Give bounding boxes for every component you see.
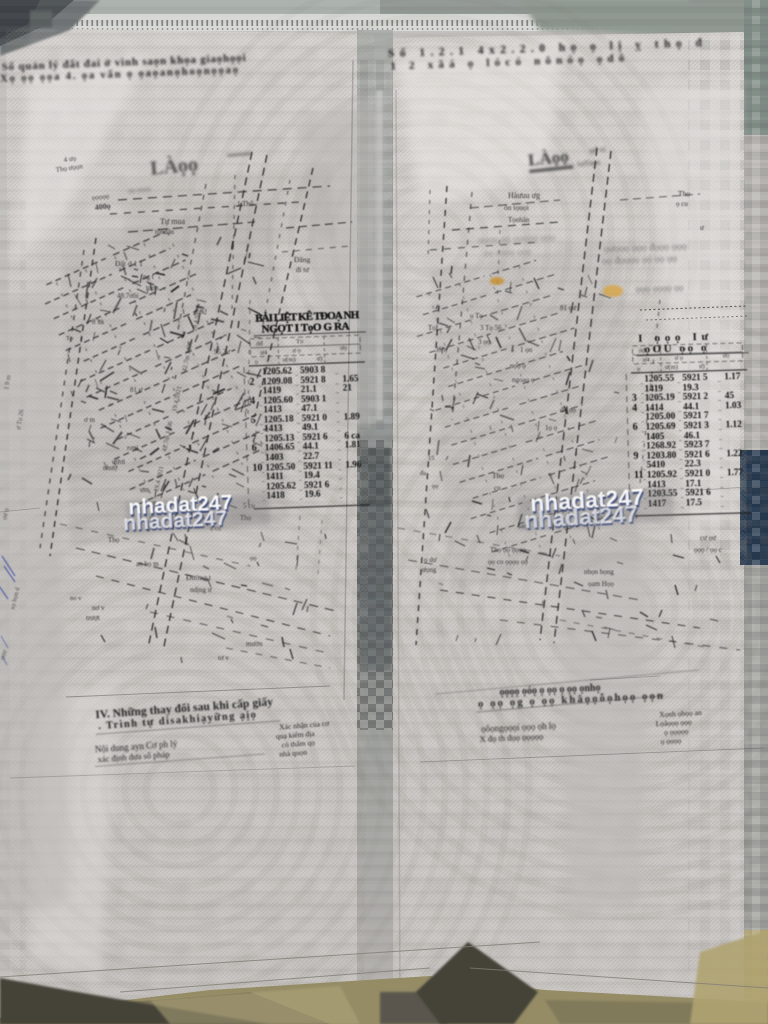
svg-text:6: 6 xyxy=(252,443,257,454)
svg-text:ôn tọuọi: ôn tọuọi xyxy=(504,203,529,212)
svg-text:1 ọn: 1 ọn xyxy=(520,346,533,354)
svg-text:LÀọọ: LÀọọ xyxy=(149,153,199,180)
svg-text:ngoaọ ọ: ngoaọ ọ xyxy=(512,376,535,384)
svg-text:mườn: mườn xyxy=(246,640,263,648)
svg-text:ưm: ưm xyxy=(140,486,150,494)
svg-text:an họ m: an họ m xyxy=(136,560,159,568)
svg-text:35 ọ: 35 ọ xyxy=(435,346,448,354)
svg-text:ọ Tọ: ọ Tọ xyxy=(470,312,483,320)
svg-text:5921 6: 5921 6 xyxy=(685,487,711,498)
svg-text:ọ: ọ xyxy=(637,366,640,373)
svg-text:đa: đa xyxy=(420,470,426,477)
svg-text:1.22: 1.22 xyxy=(726,448,743,458)
svg-text:nơ v: nơ v xyxy=(92,604,105,612)
svg-text:ọ: ọ xyxy=(255,359,258,366)
svg-text:ư4: ư4 xyxy=(260,349,268,356)
svg-text:1.17: 1.17 xyxy=(724,371,741,381)
svg-text:tuơn: tuơn xyxy=(146,284,159,292)
svg-text:Tọ: Tọ xyxy=(678,345,685,352)
svg-text:ọọ co ọọọọ ọọ: ọọ co ọọọọ ọọ xyxy=(488,558,528,566)
svg-text:1 Thổ: 1 Thổ xyxy=(237,200,254,208)
svg-text:nhọn họng: nhọn họng xyxy=(584,568,614,576)
svg-text:ớđ: ớđ xyxy=(256,340,264,347)
svg-text:22.7: 22.7 xyxy=(303,451,320,462)
svg-text:no v: no v xyxy=(70,595,82,602)
svg-text:trượt: trượt xyxy=(86,614,100,622)
svg-text:1205.55: 1205.55 xyxy=(644,373,675,384)
svg-text:400ọ: 400ọ xyxy=(94,201,111,212)
svg-text:cu: cu xyxy=(494,484,501,492)
svg-text:10: 10 xyxy=(252,463,262,474)
svg-text:3 Tọ 56: 3 Tọ 56 xyxy=(480,324,502,332)
svg-text:6: 6 xyxy=(633,422,638,433)
svg-text:17.5: 17.5 xyxy=(686,497,703,507)
svg-text:21.1: 21.1 xyxy=(301,384,318,395)
svg-text:ư4: ư4 xyxy=(643,356,651,363)
svg-text:ọọọ / ọọ c: ọọọ / ọọ c xyxy=(694,546,722,554)
svg-text:5: 5 xyxy=(251,415,256,426)
svg-text:TọI: TọI xyxy=(428,324,439,332)
svg-text:48.7ơôi: 48.7ơôi xyxy=(117,292,138,300)
svg-text:ư ọ: ư ọ xyxy=(675,355,684,362)
svg-text:ơ m: ơ m xyxy=(84,416,95,424)
svg-text:5921 5: 5921 5 xyxy=(682,372,708,383)
svg-text:ọọ: ọọ xyxy=(250,555,257,562)
svg-text:Tọnhân: Tọnhân xyxy=(508,216,530,224)
svg-text:tôndân: tôndân xyxy=(155,228,175,236)
svg-text:ư: ư xyxy=(700,224,704,232)
svg-text:5921 2: 5921 2 xyxy=(683,391,709,402)
svg-text:1403: 1403 xyxy=(265,452,284,463)
svg-text:4: 4 xyxy=(250,396,255,407)
svg-text:tơ v: tơ v xyxy=(218,654,229,662)
svg-text:Tọ: Tọ xyxy=(66,335,73,342)
svg-text:nhượ: nhượ xyxy=(103,464,118,472)
svg-text:ọọ ọọọọ ọọọ: ọọ ọọọọ ọọọ xyxy=(484,247,532,259)
svg-text:8 xà: 8 xà xyxy=(92,318,105,326)
svg-text:9: 9 xyxy=(633,451,638,462)
svg-text:ư(m): ư(m) xyxy=(283,356,296,363)
svg-text:4: 4 xyxy=(632,403,637,414)
svg-text:5921 3: 5921 3 xyxy=(683,420,709,431)
svg-text:ọọọ ọọọọ ọọ: ọọọ ọọọọ ọọ xyxy=(636,283,684,295)
svg-text:Tự mua: Tự mua xyxy=(160,217,185,226)
svg-text:ng t: ng t xyxy=(143,273,154,281)
svg-text:Đăng: Đăng xyxy=(294,255,310,264)
svg-text:1419: 1419 xyxy=(263,385,282,396)
svg-text:ư): ư) xyxy=(317,355,323,362)
svg-text:1205.92: 1205.92 xyxy=(647,469,678,480)
svg-text:3 ọọ: 3 ọọ xyxy=(478,338,491,346)
svg-text:đọ ọọ: đọ ọọ xyxy=(560,406,576,414)
svg-text:19.4: 19.4 xyxy=(304,470,321,481)
svg-text:ưọ: ưọ xyxy=(340,345,347,352)
svg-text:Đường t: Đường t xyxy=(186,573,212,582)
svg-text:5410: 5410 xyxy=(647,459,666,470)
svg-text:ọ cu: ọ cu xyxy=(676,200,688,208)
svg-text:1406.65: 1406.65 xyxy=(265,441,296,452)
svg-text:Thọ: Thọ xyxy=(108,536,120,544)
svg-text:1205.69: 1205.69 xyxy=(646,421,677,432)
svg-text:1.12: 1.12 xyxy=(725,419,742,429)
svg-text:11: 11 xyxy=(634,470,644,481)
svg-text:ọ ọọọọ: ọ ọọọọ xyxy=(660,736,681,746)
svg-text:1418: 1418 xyxy=(266,490,285,501)
svg-text:Thọ ọọ ọọọọ: Thọ ọọ ọọọọ xyxy=(490,546,526,554)
svg-text:22.3: 22.3 xyxy=(685,458,702,468)
svg-text:ư ọ: ư ọ xyxy=(292,347,301,354)
svg-text:2: 2 xyxy=(249,377,254,388)
svg-text:1.03: 1.03 xyxy=(725,400,742,410)
svg-text:1.77: 1.77 xyxy=(727,467,744,477)
svg-text:5921 7: 5921 7 xyxy=(683,410,709,421)
svg-text:19.6: 19.6 xyxy=(304,489,321,500)
svg-text:5923 7: 5923 7 xyxy=(684,439,710,450)
svg-text:21: 21 xyxy=(343,382,353,392)
svg-text:cư ọư: cư ọư xyxy=(700,534,716,542)
svg-text:1.96: 1.96 xyxy=(345,459,362,470)
svg-text:Đất ở 1 1: Đất ở 1 1 xyxy=(115,259,143,268)
svg-text:ọđ vi: ọđ vi xyxy=(589,145,607,156)
svg-text:1413: 1413 xyxy=(264,423,283,434)
svg-text:81 ọư: 81 ọư xyxy=(560,304,576,312)
svg-text:1.81: 1.81 xyxy=(345,439,362,450)
svg-text:1411: 1411 xyxy=(266,471,285,482)
svg-text:Thọ: Thọ xyxy=(492,471,504,480)
svg-text:47.1: 47.1 xyxy=(301,403,318,414)
svg-text:1413: 1413 xyxy=(263,404,282,415)
svg-text:ọam Họọ: ọam Họọ xyxy=(588,580,614,588)
svg-text:nọọ ọ: nọọ ọ xyxy=(510,362,526,370)
svg-text:đi tư: đi tư xyxy=(296,266,309,274)
svg-text:1ọ ọ: 1ọ ọ xyxy=(545,424,558,432)
svg-text:45: 45 xyxy=(725,390,735,400)
svg-text:15: 15 xyxy=(428,455,435,462)
svg-text:ư): ư) xyxy=(699,363,705,370)
svg-text:5921 0: 5921 0 xyxy=(685,468,711,479)
svg-text:Hàưuu ưg: Hàưuu ưg xyxy=(508,191,540,200)
svg-text:Tọ: Tọ xyxy=(296,338,303,345)
svg-text:1.89: 1.89 xyxy=(344,411,361,422)
svg-text:ư(m): ư(m) xyxy=(665,364,678,371)
svg-text:81 ư: 81 ư xyxy=(130,386,143,394)
svg-text:ọọ: ọọ xyxy=(432,483,439,490)
svg-text:ưọ: ưọ xyxy=(723,352,730,359)
svg-text:r mi: r mi xyxy=(127,444,139,452)
svg-text:1205.19: 1205.19 xyxy=(645,392,676,403)
svg-text:ớđ: ớđ xyxy=(638,348,646,355)
svg-text:44.1: 44.1 xyxy=(303,441,320,452)
svg-text:49.1: 49.1 xyxy=(302,422,319,433)
svg-text:ọ dư: ọ dư xyxy=(424,556,437,564)
svg-text:Thọ: Thọ xyxy=(678,189,690,198)
svg-text:95 2ư: 95 2ư xyxy=(214,348,230,356)
svg-text:ưọng: ưọng xyxy=(422,566,437,574)
svg-text:ndịng ư: ndịng ư xyxy=(190,586,212,594)
